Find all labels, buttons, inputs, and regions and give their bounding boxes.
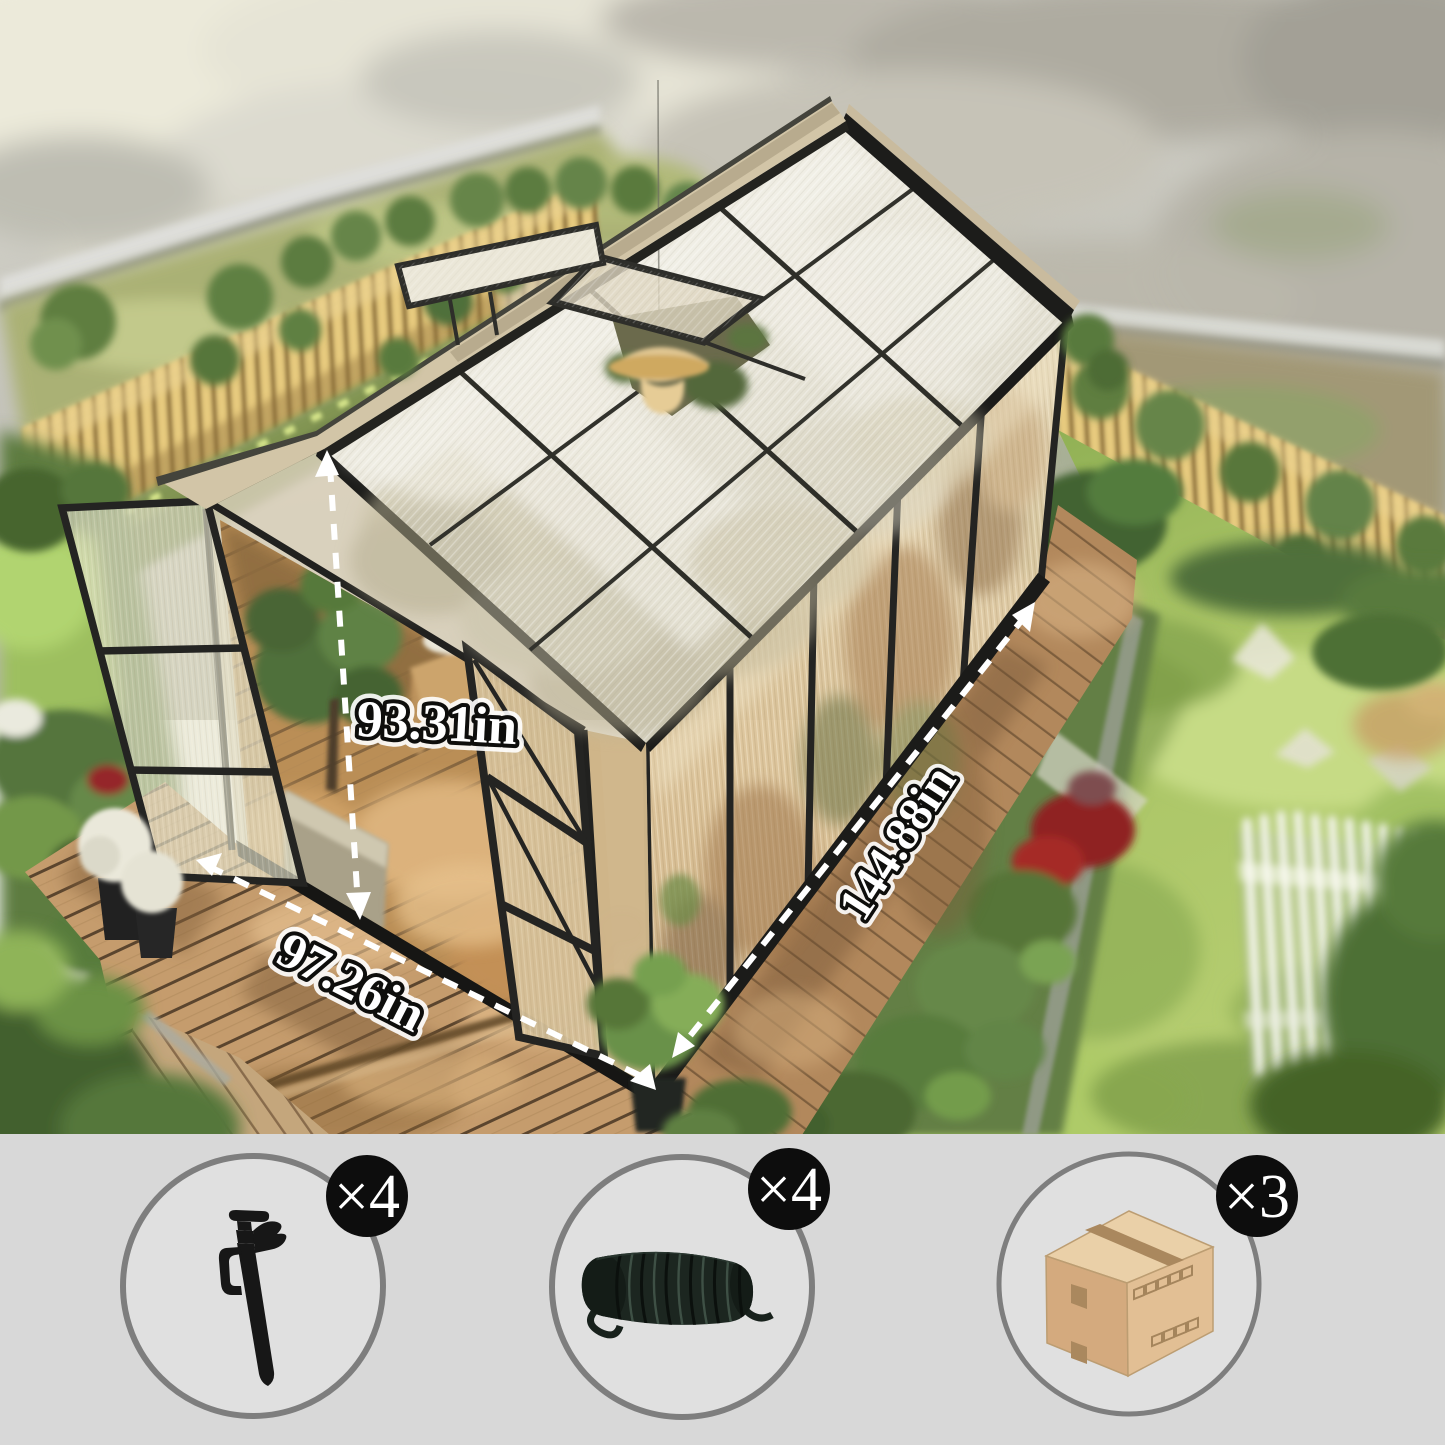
svg-text:×4: ×4 — [756, 1156, 822, 1224]
svg-text:×3: ×3 — [1224, 1163, 1290, 1231]
svg-text:×4: ×4 — [334, 1163, 400, 1231]
svg-text:93.31in: 93.31in — [355, 691, 518, 756]
